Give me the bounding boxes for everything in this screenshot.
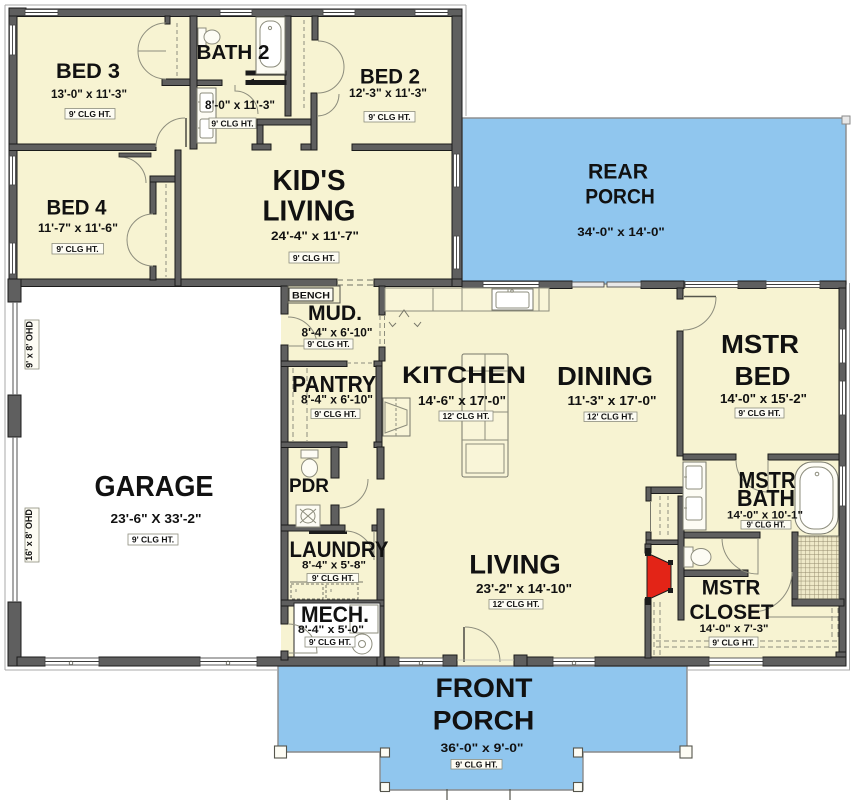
svg-text:BATH: BATH [737, 485, 795, 511]
svg-text:9' CLG HT.: 9' CLG HT. [132, 534, 174, 544]
svg-text:9' CLG HT.: 9' CLG HT. [69, 109, 111, 119]
svg-text:12'-3" x 11'-3": 12'-3" x 11'-3" [349, 88, 427, 100]
svg-text:13'-0" x 11'-3": 13'-0" x 11'-3" [51, 89, 127, 101]
svg-text:8'-4" x 5'-8": 8'-4" x 5'-8" [302, 560, 366, 572]
svg-text:14'-0" x 15'-2": 14'-0" x 15'-2" [720, 391, 807, 406]
svg-text:9' CLG HT.: 9' CLG HT. [455, 759, 497, 769]
svg-text:12' CLG HT.: 12' CLG HT. [443, 411, 490, 421]
svg-text:9' x 8' OHD: 9' x 8' OHD [25, 321, 35, 368]
svg-text:PDR: PDR [289, 476, 329, 497]
svg-text:MUD.: MUD. [308, 302, 362, 325]
svg-text:24'-4" x 11'-7": 24'-4" x 11'-7" [271, 229, 359, 243]
svg-text:14'-0" x 7'-3": 14'-0" x 7'-3" [700, 623, 769, 635]
svg-text:BED 2: BED 2 [360, 66, 420, 89]
svg-text:REAR: REAR [588, 161, 648, 184]
svg-text:BENCH: BENCH [292, 291, 330, 301]
svg-text:12' CLG HT.: 12' CLG HT. [493, 599, 540, 609]
svg-text:LAUNDRY: LAUNDRY [290, 537, 389, 562]
svg-text:23'-6" X 33'-2": 23'-6" X 33'-2" [111, 511, 202, 526]
svg-text:MSTR: MSTR [702, 576, 761, 600]
svg-text:FRONT: FRONT [436, 673, 534, 703]
svg-text:36'-0" x 9'-0": 36'-0" x 9'-0" [441, 741, 524, 755]
svg-text:LIVING: LIVING [263, 196, 356, 228]
svg-text:8'-4" x 5'-0": 8'-4" x 5'-0" [298, 624, 364, 636]
svg-text:GARAGE: GARAGE [95, 471, 214, 503]
svg-text:8'-0" x 11'-3": 8'-0" x 11'-3" [205, 100, 275, 112]
svg-text:9' CLG HT.: 9' CLG HT. [747, 521, 786, 530]
svg-text:PORCH: PORCH [585, 186, 655, 209]
svg-text:23'-2" x 14'-10": 23'-2" x 14'-10" [476, 582, 572, 596]
svg-text:11'-3" x 17'-0": 11'-3" x 17'-0" [568, 394, 657, 408]
svg-text:9' CLG HT.: 9' CLG HT. [312, 573, 354, 583]
svg-text:14'-6" x 17'-0": 14'-6" x 17'-0" [418, 394, 506, 408]
svg-text:BED: BED [735, 361, 791, 391]
svg-text:BED 4: BED 4 [47, 197, 107, 220]
svg-text:8'-4" x 6'-10": 8'-4" x 6'-10" [301, 395, 373, 407]
svg-text:PORCH: PORCH [433, 706, 535, 736]
svg-text:BATH 2: BATH 2 [197, 42, 270, 64]
svg-text:DINING: DINING [557, 361, 653, 391]
svg-text:34'-0" x 14'-0": 34'-0" x 14'-0" [577, 225, 665, 239]
svg-text:9' CLG HT.: 9' CLG HT. [307, 339, 349, 349]
svg-text:9' CLG HT.: 9' CLG HT. [314, 409, 356, 419]
svg-text:CLOSET: CLOSET [690, 600, 774, 624]
svg-text:BED 3: BED 3 [56, 60, 120, 83]
svg-text:9' CLG HT.: 9' CLG HT. [309, 637, 351, 647]
svg-text:12' CLG HT.: 12' CLG HT. [587, 412, 634, 422]
svg-text:11'-7" x 11'-6": 11'-7" x 11'-6" [38, 223, 118, 235]
svg-text:KID'S: KID'S [273, 165, 346, 197]
svg-text:9' CLG HT.: 9' CLG HT. [293, 253, 335, 263]
svg-text:9' CLG HT.: 9' CLG HT. [712, 638, 754, 648]
svg-text:9' CLG HT.: 9' CLG HT. [738, 408, 780, 418]
svg-text:8'-4" x 6'-10": 8'-4" x 6'-10" [302, 328, 373, 340]
svg-text:MSTR: MSTR [721, 329, 799, 359]
svg-text:9' CLG HT.: 9' CLG HT. [56, 244, 98, 254]
svg-text:16' x 8' OHD: 16' x 8' OHD [24, 509, 34, 561]
svg-text:KITCHEN: KITCHEN [402, 362, 526, 389]
svg-text:9' CLG HT.: 9' CLG HT. [211, 118, 253, 128]
svg-text:9' CLG HT.: 9' CLG HT. [368, 112, 410, 122]
svg-text:PANTRY: PANTRY [292, 371, 376, 397]
svg-text:LIVING: LIVING [469, 550, 561, 580]
